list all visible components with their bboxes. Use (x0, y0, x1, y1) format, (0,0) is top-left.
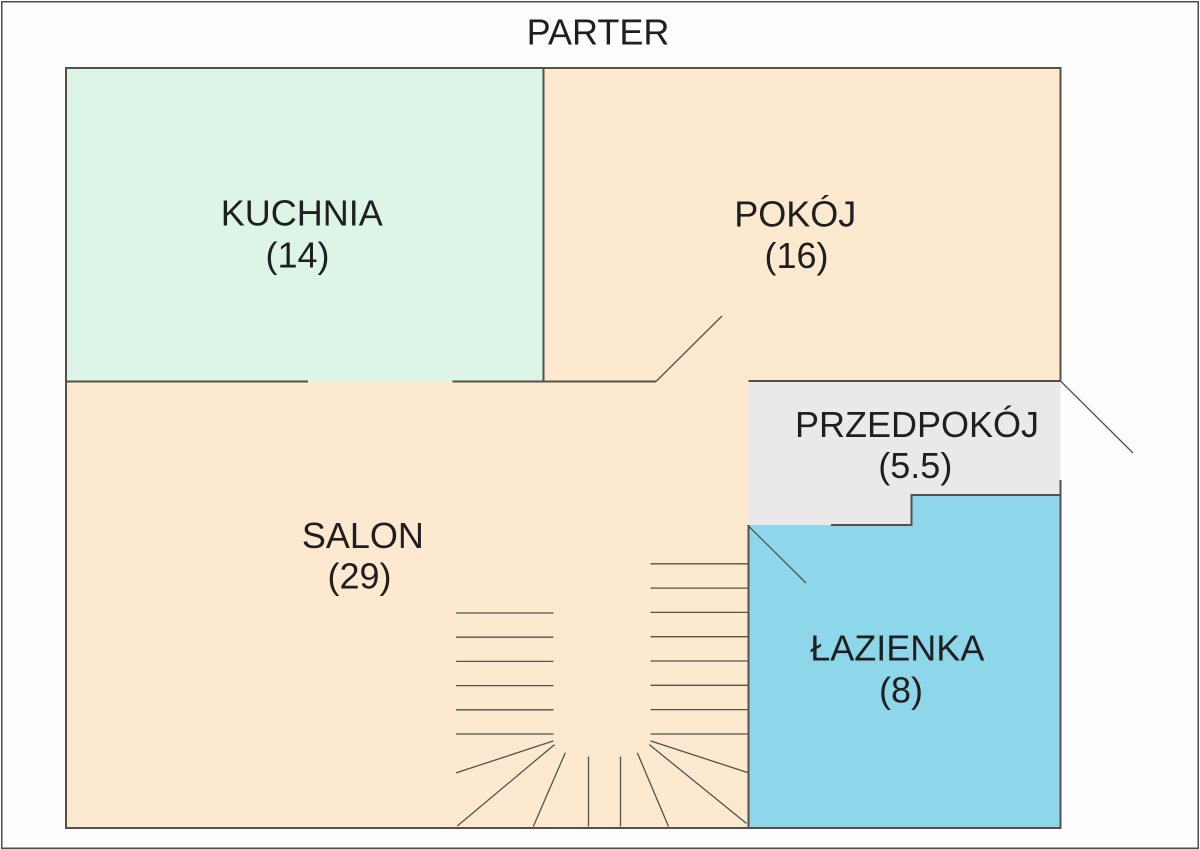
svg-text:(29): (29) (327, 556, 391, 597)
svg-text:(8): (8) (879, 670, 923, 711)
svg-text:SALON: SALON (302, 515, 424, 556)
svg-text:(14): (14) (265, 235, 329, 276)
svg-text:ŁAZIENKA: ŁAZIENKA (810, 628, 984, 669)
svg-text:(16): (16) (764, 235, 828, 276)
svg-text:PARTER: PARTER (527, 12, 670, 53)
svg-text:POKÓJ: POKÓJ (734, 194, 856, 235)
svg-text:PRZEDPOKÓJ: PRZEDPOKÓJ (795, 404, 1039, 445)
svg-text:KUCHNIA: KUCHNIA (221, 193, 383, 234)
svg-text:(5.5): (5.5) (878, 445, 952, 486)
